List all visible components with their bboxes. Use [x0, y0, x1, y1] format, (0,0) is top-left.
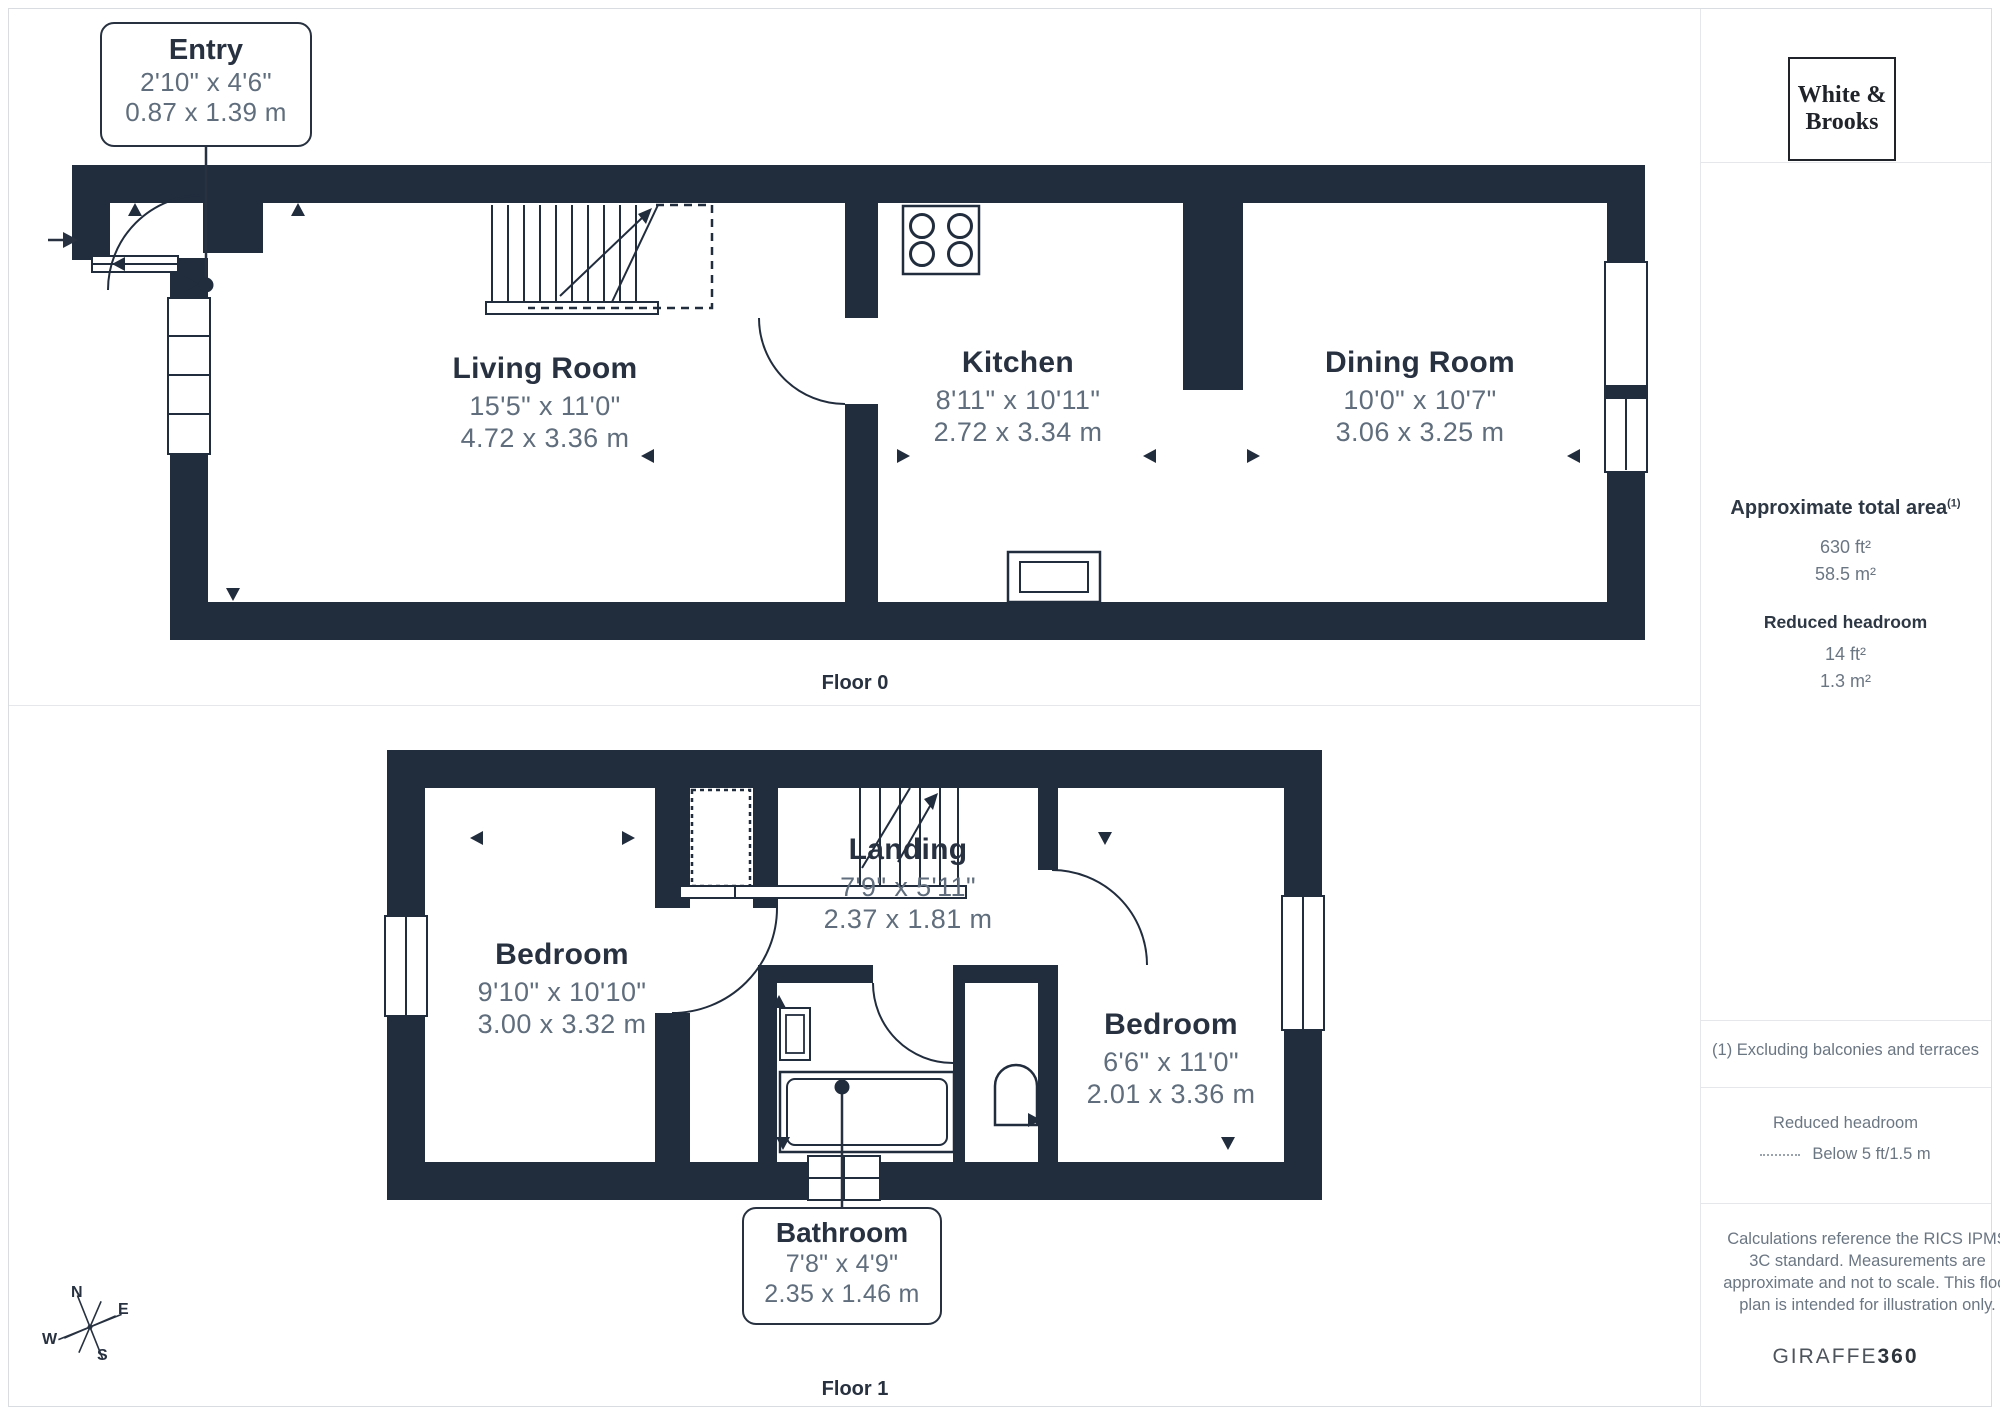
- room-dimensions-imperial: 8'11" x 10'11": [934, 384, 1103, 416]
- floor1-label: Floor 1: [822, 1378, 889, 1401]
- dotted-line-icon: [1760, 1154, 1800, 1156]
- total-area-m: 58.5 m²: [1700, 561, 1991, 588]
- area-summary: Approximate total area(1) 630 ft² 58.5 m…: [1700, 497, 1991, 695]
- agency-logo: White & Brooks: [1788, 57, 1896, 161]
- room-dimensions-imperial: 2'10" x 4'6": [102, 67, 310, 97]
- room-dimensions-imperial: 7'8" x 4'9": [744, 1249, 940, 1279]
- legend-text: Below 5 ft/1.5 m: [1812, 1145, 1930, 1163]
- room-label-living-room: Living Room 15'5" x 11'0" 4.72 x 3.36 m: [453, 352, 638, 454]
- compass-icon: [58, 1295, 121, 1358]
- room-dimensions-metric: 2.72 x 3.34 m: [934, 416, 1103, 448]
- room-label-dining-room: Dining Room 10'0" x 10'7" 3.06 x 3.25 m: [1325, 346, 1515, 448]
- room-dimensions-imperial: 9'10" x 10'10": [478, 976, 647, 1008]
- stairs-icon: [486, 205, 712, 314]
- disclaimer-text: Calculations reference the RICS IPMS 3C …: [1700, 1228, 2000, 1316]
- floorplan-page: Living Room 15'5" x 11'0" 4.72 x 3.36 m …: [0, 0, 2000, 1415]
- agency-logo-line2: Brooks: [1806, 109, 1879, 135]
- room-name: Kitchen: [934, 346, 1103, 380]
- compass-east-label: E: [118, 1301, 129, 1319]
- floor0-label: Floor 0: [822, 672, 889, 695]
- stove-icon: [903, 206, 979, 274]
- closet-dashed: [692, 790, 750, 886]
- room-dimensions-metric: 2.35 x 1.46 m: [744, 1279, 940, 1309]
- room-dimensions-metric: 3.06 x 3.25 m: [1325, 416, 1515, 448]
- compass-west-label: W: [42, 1331, 57, 1349]
- room-label-bedroom-right: Bedroom 6'6" x 11'0" 2.01 x 3.36 m: [1087, 1008, 1256, 1110]
- callout-entry: Entry 2'10" x 4'6" 0.87 x 1.39 m: [100, 22, 312, 147]
- room-name: Landing: [824, 833, 993, 867]
- sink-icon: [780, 1008, 810, 1060]
- bathtub-icon: [780, 1072, 954, 1152]
- room-dimensions-metric: 2.01 x 3.36 m: [1087, 1078, 1256, 1110]
- agency-logo-text: White & Brooks: [1798, 82, 1887, 136]
- giraffe360-logo-regular: GIRAFFE: [1772, 1345, 1877, 1368]
- reduced-headroom-legend: Reduced headroom Below 5 ft/1.5 m: [1700, 1114, 1991, 1164]
- room-name: Dining Room: [1325, 346, 1515, 380]
- legend-title: Reduced headroom: [1700, 1114, 1991, 1133]
- room-label-kitchen: Kitchen 8'11" x 10'11" 2.72 x 3.34 m: [934, 346, 1103, 448]
- reduced-headroom-title: Reduced headroom: [1700, 612, 1991, 633]
- room-name: Entry: [102, 34, 310, 67]
- room-dimensions-metric: 0.87 x 1.39 m: [102, 97, 310, 127]
- total-area-title-text: Approximate total area: [1730, 497, 1947, 519]
- room-dimensions-imperial: 6'6" x 11'0": [1087, 1046, 1256, 1078]
- room-name: Bedroom: [478, 938, 647, 972]
- room-label-bedroom-left: Bedroom 9'10" x 10'10" 3.00 x 3.32 m: [478, 938, 647, 1040]
- callout-bathroom: Bathroom 7'8" x 4'9" 2.35 x 1.46 m: [742, 1207, 942, 1325]
- room-dimensions-metric: 3.00 x 3.32 m: [478, 1008, 647, 1040]
- room-dimensions-imperial: 10'0" x 10'7": [1325, 384, 1515, 416]
- room-name: Bedroom: [1087, 1008, 1256, 1042]
- area-footnote: (1) Excluding balconies and terraces: [1700, 1041, 1991, 1060]
- room-name: Living Room: [453, 352, 638, 386]
- reduced-headroom-ft: 14 ft²: [1700, 641, 1991, 668]
- giraffe360-logo: GIRAFFE360: [1700, 1345, 1991, 1369]
- floorplan-drawing: [0, 0, 2000, 1415]
- total-area-ft: 630 ft²: [1700, 534, 1991, 561]
- room-dimensions-imperial: 15'5" x 11'0": [453, 390, 638, 422]
- room-name: Bathroom: [744, 1217, 940, 1249]
- room-dimensions-metric: 2.37 x 1.81 m: [824, 903, 993, 935]
- compass-north-label: N: [71, 1284, 83, 1302]
- sink-icon: [1008, 552, 1100, 602]
- total-area-footnote-marker: (1): [1947, 497, 1960, 509]
- compass-south-label: S: [97, 1347, 108, 1365]
- reduced-headroom-m: 1.3 m²: [1700, 668, 1991, 695]
- agency-logo-line1: White &: [1798, 82, 1887, 108]
- legend-row: Below 5 ft/1.5 m: [1700, 1145, 1991, 1164]
- room-label-landing: Landing 7'9" x 5'11" 2.37 x 1.81 m: [824, 833, 993, 935]
- room-dimensions-metric: 4.72 x 3.36 m: [453, 422, 638, 454]
- giraffe360-logo-bold: 360: [1877, 1345, 1918, 1368]
- room-dimensions-imperial: 7'9" x 5'11": [824, 871, 993, 903]
- total-area-title: Approximate total area(1): [1700, 497, 1991, 520]
